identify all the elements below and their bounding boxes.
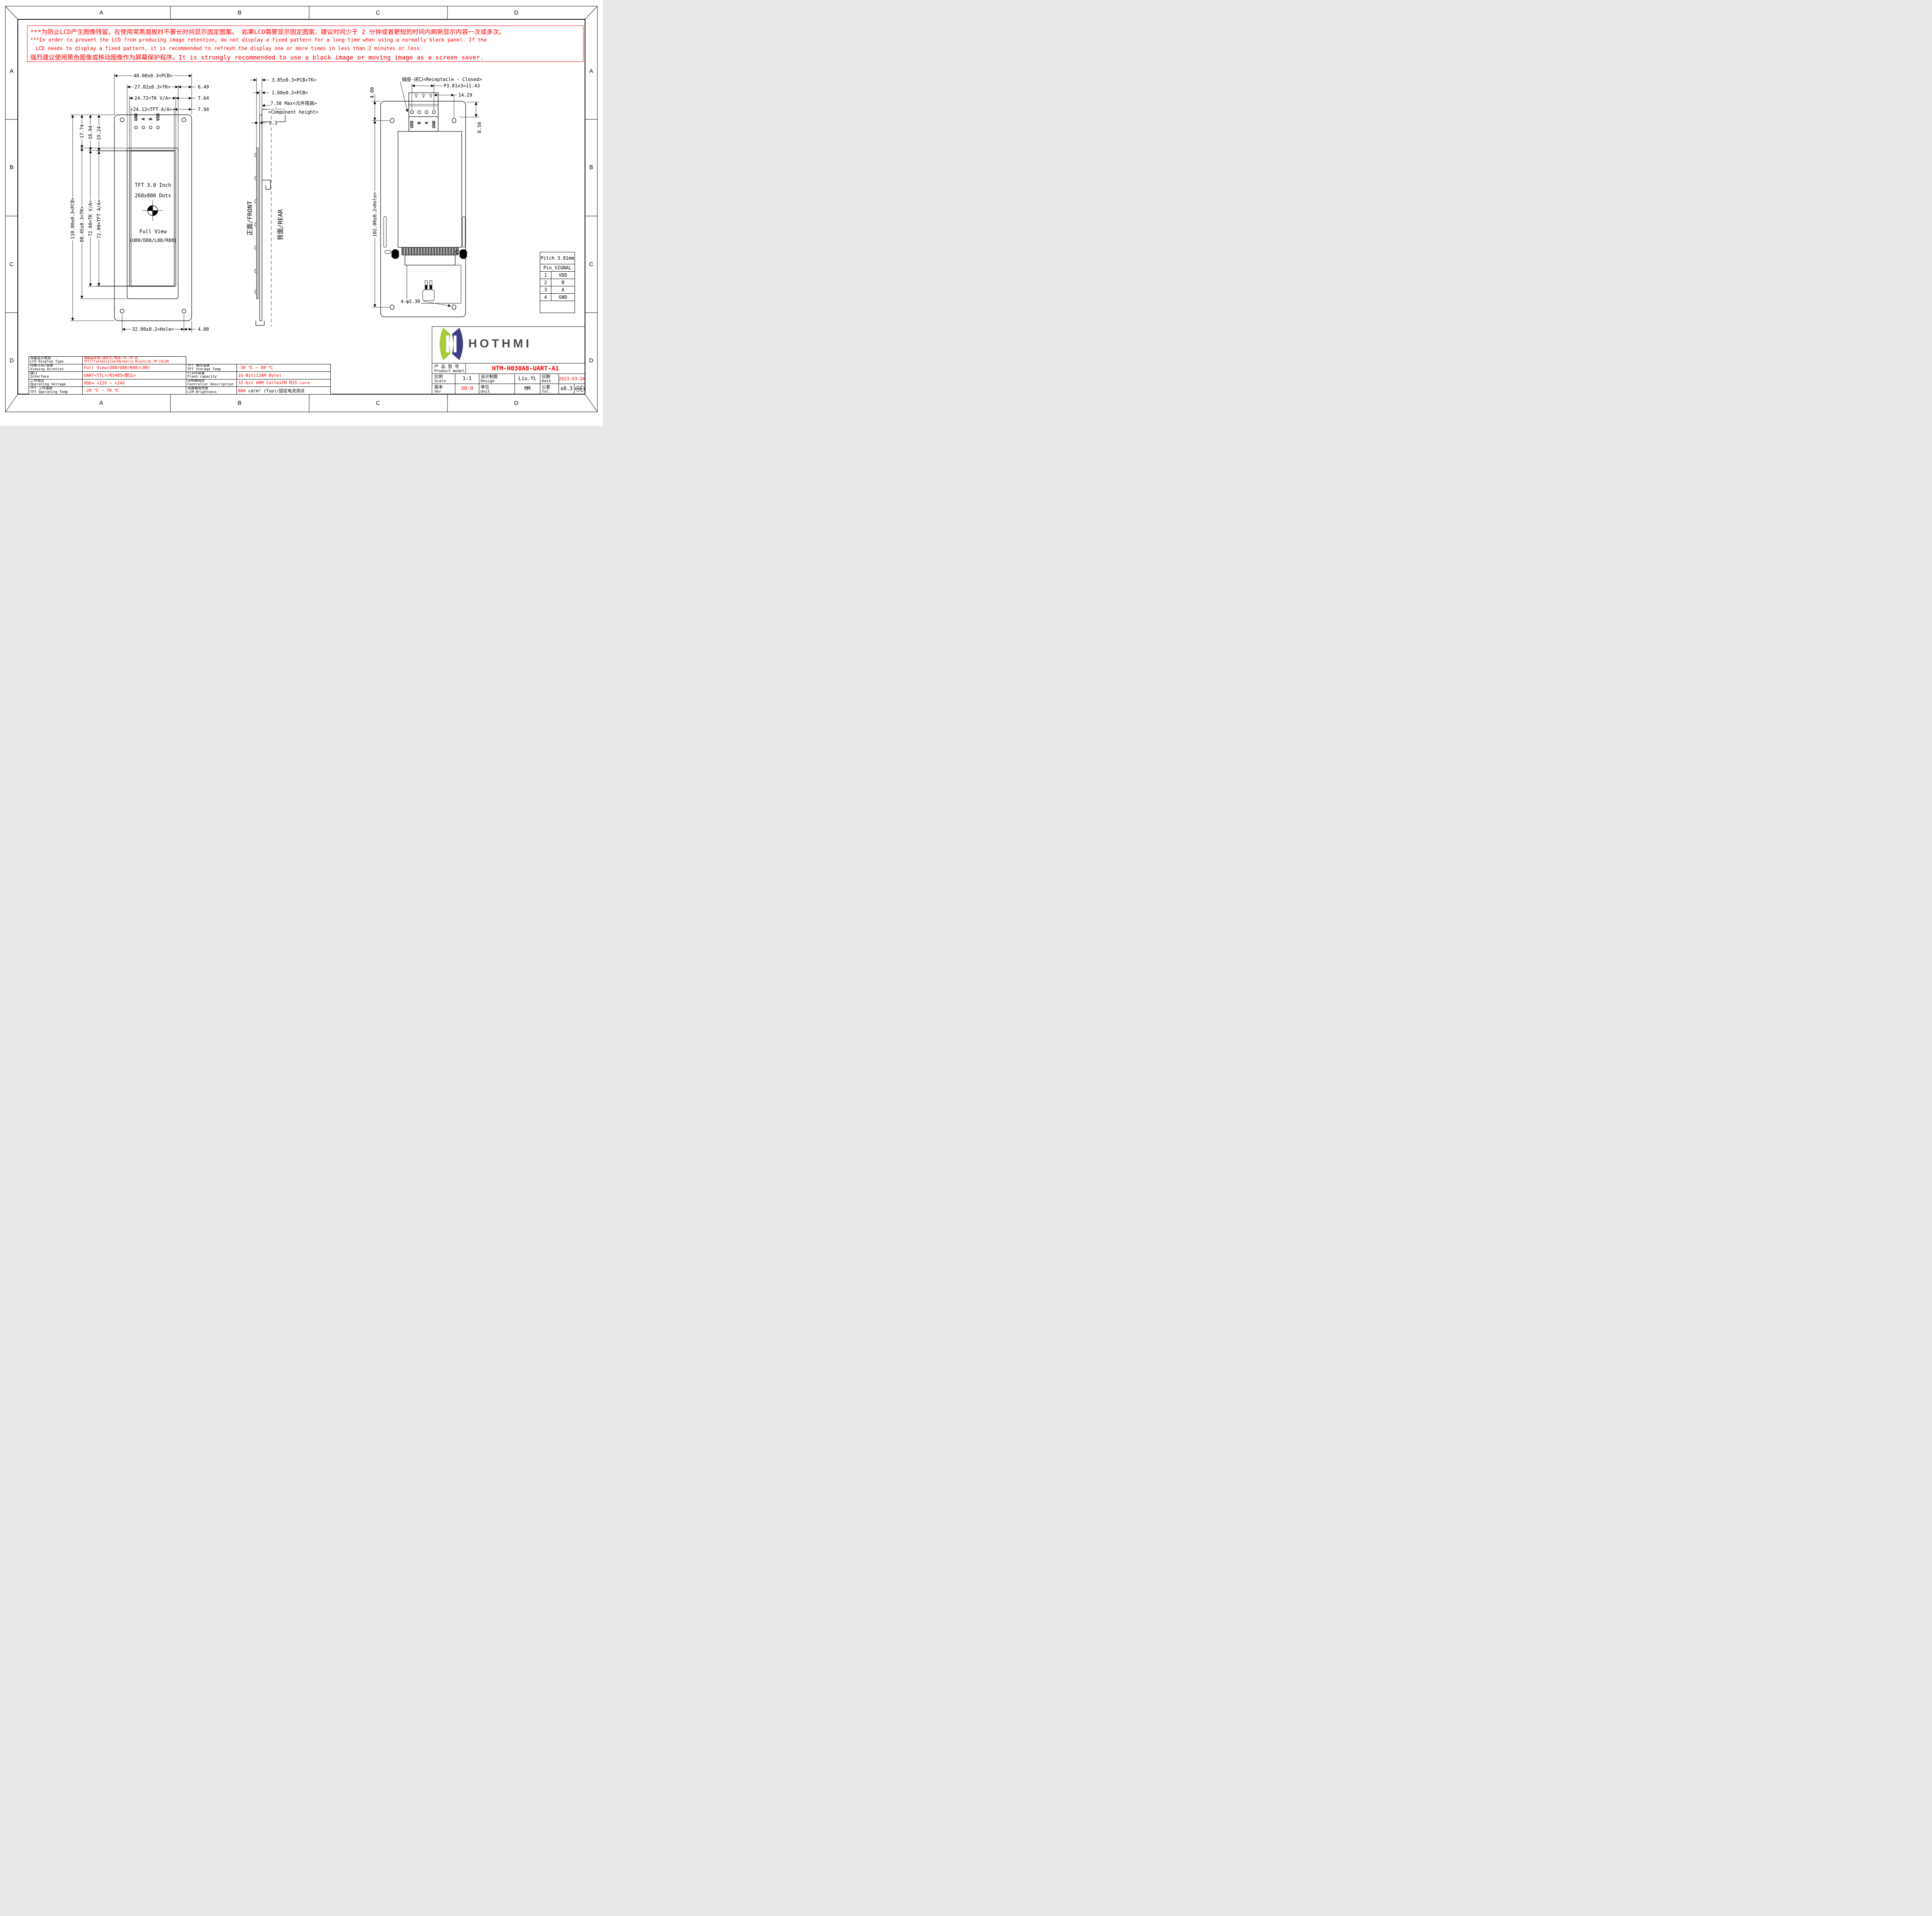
pin-row-1: 1 VDD [540, 272, 575, 279]
zif-pins [402, 247, 458, 255]
date-value: 2023-03-26 [558, 376, 585, 381]
dim-400-rear: 4.00 [370, 87, 374, 99]
warning-line-1: ***为防止LCD产生图像残留，在使用常黑面板时不要长时间显示固定图案。 如果L… [30, 27, 505, 36]
spec-voltage-label: 工作电压 Operating Voltage [29, 379, 83, 387]
dim-hole-height: 102.00±0.2<Hole> [372, 191, 377, 238]
spec-viewing-label: 观看方向/角度 Viewing Diretion [29, 364, 83, 372]
zone-bottom-d: D [514, 400, 519, 407]
receptacle-keys [415, 94, 432, 97]
dim-tftaa-width: 24.12<TFT A/A> [132, 107, 173, 112]
front-pcb-outline [114, 115, 192, 321]
rear-mount-hole [390, 118, 394, 123]
dim-400-front: 4.00 [198, 327, 209, 332]
date-label: 日期 Date [542, 374, 551, 383]
dim-850: 8.50 [477, 121, 482, 134]
spec-viewing-value: Full View(U80/D80/R80/L80) [83, 364, 186, 372]
front-mount-hole [182, 118, 186, 122]
version-label-zh: 版本 [434, 385, 443, 390]
display-view-text: Full View [139, 229, 167, 235]
pin-table-title: Pin_SIGNAL [540, 264, 575, 272]
spec-table-right: TFT 储存温度 TFT Storage Temp -30 ℃ ~ 80 ℃ F… [186, 364, 331, 395]
front-pin-hole [150, 126, 152, 129]
zone-left-d: D [10, 357, 14, 364]
spec-voltage-en: Operating Voltage [30, 383, 81, 387]
front-pin-hole [142, 126, 145, 129]
scale-value: 1:1 [463, 376, 471, 382]
design-value: Liu.YL [519, 376, 537, 382]
dim-pitch: P3.81x3=11.43 [444, 83, 480, 88]
front-mount-hole [120, 309, 124, 313]
sheet-frame [5, 6, 597, 412]
product-model-label: 产 品 型 号 Product model [434, 364, 464, 373]
hole-callout: 4-φ2.30 [400, 299, 421, 304]
side-hook [262, 180, 270, 189]
zone-top-c: C [376, 10, 380, 16]
dim-794: 7.94 [198, 107, 209, 112]
dim-pcb-width: 40.00±0.3<PCB> [133, 73, 173, 78]
spec-optemp-value: -20 ℃ ~ 70 ℃ [83, 387, 186, 395]
spec-interface-en: Interface [30, 375, 81, 379]
rear-dimensions [372, 82, 479, 307]
dim-764: 7.64 [198, 95, 209, 101]
zone-bottom-b: B [238, 400, 241, 407]
projection-symbol-icon [575, 386, 584, 392]
zone-right-b: B [589, 164, 593, 171]
rear-pin-label-a: A [424, 122, 429, 124]
front-pin-label-gnd: GND [134, 113, 139, 121]
spec-flash-en: Flash capacity [187, 375, 235, 379]
rear-slot [463, 216, 465, 247]
hothmi-logo-icon [440, 328, 463, 360]
spec-lcd-type-en: LCD Display Type [30, 360, 81, 364]
pin-3-no: 3 [540, 286, 551, 293]
dim-pcb-height: 110.00±0.3<PCB> [70, 197, 75, 240]
pin-row-2: 2 B [540, 279, 575, 286]
spec-interface-value: UART<TTL>/RS485<默认> [83, 372, 186, 379]
dim-pcb-tk-thickness: 3.85±0.3<PCB+TK> [272, 77, 316, 83]
center-mark-icon [142, 200, 163, 221]
display-size-text: TFT 3.0 Inch [135, 183, 171, 189]
front-pin-hole [157, 126, 160, 129]
front-pin-label-b: B [148, 118, 153, 121]
side-pin-bumps [255, 153, 257, 294]
spec-optemp-en: TFT Operating Temp [30, 391, 81, 395]
zone-right-c: C [589, 261, 594, 268]
spec-interface-label: 接口 Interface [29, 372, 83, 379]
scale-label: 比例 Scale [434, 374, 446, 383]
warning-line-2: ***In order to prevent the LCD from prod… [30, 37, 487, 43]
rear-pin-label-vdd: VDD [410, 121, 415, 128]
zone-bottom-c: C [376, 400, 380, 407]
version-label: 版本 Ver [434, 385, 443, 394]
pin-4-no: 4 [540, 294, 551, 301]
date-label-en: Date [542, 379, 551, 383]
front-mount-hole [120, 118, 124, 122]
rear-pin-4 [432, 111, 435, 114]
zone-left-c: C [10, 261, 14, 268]
pin-1-no: 1 [540, 272, 551, 279]
design-label: 设计制图 Design [481, 374, 498, 383]
rear-slot-h [385, 250, 391, 254]
front-view-label: 正面/FRONT [245, 201, 254, 236]
spec-storagetemp-en: TFT Storage Temp [187, 368, 235, 372]
pin-row-4: 4 GND [540, 294, 575, 301]
spec-lcd-type-label: 液晶显示类型 LCD Display Type [29, 357, 83, 364]
pin-1-signal: VDD [551, 272, 575, 279]
zone-top-a: A [99, 10, 103, 16]
date-label-zh: 日期 [542, 374, 551, 379]
zif-latch-right [460, 250, 467, 259]
pin-table-pitch: Pitch 3.81mm [540, 252, 575, 264]
tolerance-label-en: Tol. [542, 390, 551, 394]
product-model-value: HTM-H030A8-UART-A1 [492, 365, 559, 372]
front-mount-hole [182, 309, 186, 313]
hothmi-logo-text: HOTHMI [468, 337, 532, 351]
front-pin-hole [135, 126, 138, 129]
design-label-zh: 设计制图 [481, 374, 498, 379]
tolerance-label-zh: 公差 [542, 385, 551, 390]
version-label-en: Ver [434, 390, 443, 394]
rear-module-outline [398, 131, 462, 247]
dim-1429: 14.29 [458, 92, 472, 98]
rear-mount-hole [390, 305, 394, 310]
dim-component-height-zh: 7.50 Max<元件限高> [270, 100, 317, 107]
pin-2-signal: B [551, 279, 575, 286]
spec-table-left: 液晶显示类型 LCD Display Type 薄膜晶体管/透射式/常黑/16.… [29, 356, 186, 395]
unit-label-en: Unit [481, 390, 490, 394]
dim-1894: 18.94 [88, 125, 93, 140]
zone-top-b: B [238, 10, 241, 16]
spec-optemp-label: TFT 工作温度 TFT Operating Temp [29, 387, 83, 395]
spec-voltage-value: VDD= +12V ~ +24V [83, 379, 186, 387]
rear-fpc-area [407, 265, 461, 303]
rear-pin-label-b: B [417, 122, 422, 124]
zone-top-d: D [514, 10, 519, 16]
scale-label-en: Scale [434, 379, 446, 383]
unit-value: MM [524, 386, 531, 392]
scale-label-zh: 比例 [434, 374, 446, 379]
dim-1924: 19.24 [97, 126, 101, 141]
rear-pcb-outline [381, 101, 466, 317]
spec-controller-en: Controller Description [187, 383, 235, 387]
dim-tk-width: 27.02±0.3<TK> [134, 85, 172, 89]
rear-pin-label-gnd: GND [432, 121, 437, 128]
zone-bottom-a: A [99, 400, 103, 407]
pin-2-no: 2 [540, 279, 551, 286]
spec-controller-label: 控制器描述 Controller Description [186, 379, 237, 387]
dim-tkva-height: 72.60<TK V/A> [88, 199, 93, 237]
rear-small-connector [423, 281, 434, 301]
pin-signal-table: Pitch 3.81mm Pin_SIGNAL 1 VDD 2 B 3 A 4 … [540, 252, 575, 313]
rear-mount-hole [452, 305, 456, 310]
display-dots-text: 268x800 Dots [135, 193, 171, 199]
rear-pin-3 [425, 111, 428, 114]
spec-brightness-black: cd/m² (Typ)/固定电流测试 [246, 388, 304, 393]
spec-brightness-red: 800 [238, 388, 246, 393]
dim-hole-spacing: 32.00±0.2<Hole> [131, 327, 175, 332]
unit-label-zh: 单位 [481, 385, 490, 390]
dim-649: 6.49 [198, 84, 209, 90]
dim-03: 0.3 [269, 120, 277, 126]
zone-left-a: A [10, 68, 14, 75]
front-pin-label-a: A [141, 118, 146, 121]
warning-line-4: 强烈建议使用黑色图像或移动图像作为屏幕保护程序。It is strongly r… [30, 52, 484, 61]
dim-pcb-thickness: 1.60±0.2<PCB> [272, 90, 308, 95]
spec-lcd-type-value-en: TFT/Transmissive/Normally Black/16.7M CO… [84, 360, 185, 364]
tolerance-value: ±0.3 [560, 386, 572, 392]
spec-controller-value: 32-bit ARM CortexTM M33 core [237, 379, 331, 387]
spec-brightness-en: LCM Brightness [187, 391, 235, 395]
dim-1774: 17.74 [80, 124, 84, 139]
dim-tkva-width: 24.72<TK V/A> [134, 96, 172, 100]
unit-label: 单位 Unit [481, 385, 490, 394]
spec-viewing-en: Viewing Diretion [30, 368, 81, 372]
front-glass-outline [127, 148, 178, 299]
version-value: V0-0 [461, 386, 473, 392]
zif-body [405, 255, 455, 265]
front-pin-label-vdd: VDD [156, 113, 161, 121]
spec-brightness-value: 800 cd/m² (Typ)/固定电流测试 [237, 387, 331, 395]
spec-storagetemp-value: -30 ℃ ~ 80 ℃ [237, 364, 331, 372]
spec-lcd-type-value: 薄膜晶体管/透射式/常黑/16.7M 色 TFT/Transmissive/No… [83, 357, 186, 364]
pin-table-empty-cell [540, 301, 575, 313]
spec-storagetemp-label: TFT 储存温度 TFT Storage Temp [186, 364, 237, 372]
product-model-label-zh: 产 品 型 号 [434, 364, 464, 369]
rear-view [381, 93, 467, 317]
dim-tftaa-height: 72.00<TFT A/A> [97, 199, 101, 239]
spec-flash-value: 1G-Bit(128M Byte) [237, 372, 331, 379]
spec-brightness-label: 液晶模组亮度 LCM Brightness [186, 387, 237, 395]
rear-pin-2 [418, 111, 421, 114]
front-view [114, 115, 192, 321]
dim-tk-height: 80.45±0.3<TK> [80, 205, 84, 243]
rear-view-label: 背面/REAR [275, 209, 284, 240]
tolerance-label: 公差 Tol. [542, 385, 551, 394]
pin-3-signal: A [551, 286, 575, 293]
product-model-label-en: Product model [434, 369, 464, 373]
pin-4-signal: GND [551, 294, 575, 301]
design-label-en: Design [481, 379, 498, 383]
warning-line-3: LCD needs to display a fixed pattern, it… [36, 46, 423, 52]
display-angles-text: (U80/D80/L80/R80) [129, 238, 177, 243]
rear-slot [384, 216, 386, 247]
drawing-sheet: ***为防止LCD产生图像残留，在使用常黑面板时不要长时间显示固定图案。 如果L… [0, 0, 603, 426]
receptacle-label: 插座-闭口<Receptacle - Closed> [402, 76, 482, 83]
spec-flash-label: Flash容量 Flash capacity [186, 372, 237, 379]
zone-left-b: B [10, 164, 14, 171]
pin-row-3: 3 A [540, 286, 575, 294]
zone-right-d: D [589, 357, 594, 364]
dim-component-height-en: <Component height> [268, 109, 318, 115]
zif-latch-left [392, 250, 399, 259]
rear-mount-hole [452, 118, 456, 123]
rear-pin-1 [410, 111, 413, 114]
zone-right-a: A [589, 68, 593, 75]
